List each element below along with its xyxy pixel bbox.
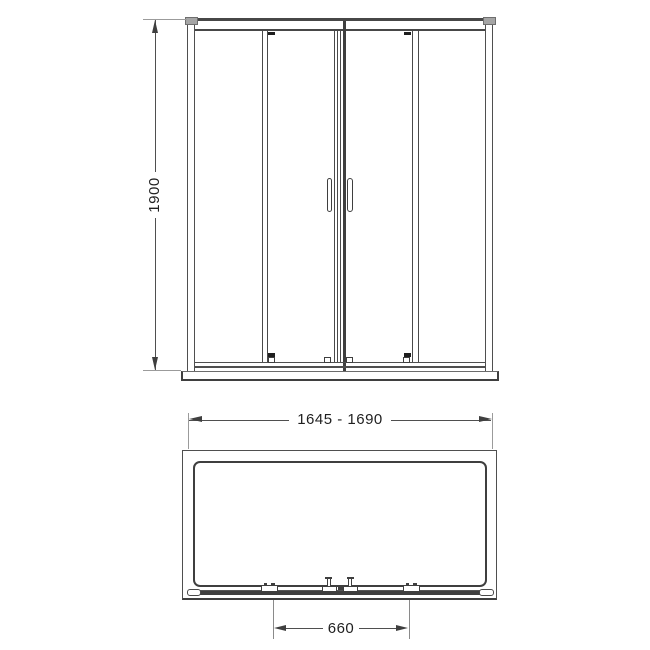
roller-carriage-left-lug-1 bbox=[264, 583, 268, 586]
center-right-handle-cap bbox=[347, 577, 354, 579]
roller-carriage-right-body bbox=[403, 585, 421, 592]
center-arrow-left-icon bbox=[274, 625, 286, 631]
width-arrow-left-icon bbox=[189, 416, 202, 422]
plan-view: 1645 - 1690 660 bbox=[0, 0, 650, 650]
roller-carriage-left-body bbox=[261, 585, 279, 592]
width-arrow-right-icon bbox=[479, 416, 492, 422]
technical-drawing-canvas: 1900 1645 - 1690 bbox=[0, 0, 650, 650]
center-guide-mid-mark bbox=[338, 587, 343, 590]
width-extension-line-right bbox=[492, 413, 493, 449]
roller-carriage-right-lug-1 bbox=[406, 583, 410, 586]
width-dimension-label: 1645 - 1690 bbox=[265, 411, 415, 429]
center-extension-line-right bbox=[409, 600, 410, 639]
bottom-track-band bbox=[200, 591, 480, 595]
roller-carriage-right-lug-2 bbox=[413, 583, 417, 586]
center-extension-line-left bbox=[273, 600, 274, 639]
center-dimension-label: 660 bbox=[300, 620, 382, 638]
track-end-bracket-right bbox=[479, 589, 494, 596]
center-left-handle-cap bbox=[325, 577, 332, 579]
track-end-bracket-left bbox=[187, 589, 202, 596]
center-arrow-right-icon bbox=[396, 625, 408, 631]
roller-carriage-left-lug-2 bbox=[271, 583, 275, 586]
glass-panel-plan-outline bbox=[193, 461, 487, 587]
